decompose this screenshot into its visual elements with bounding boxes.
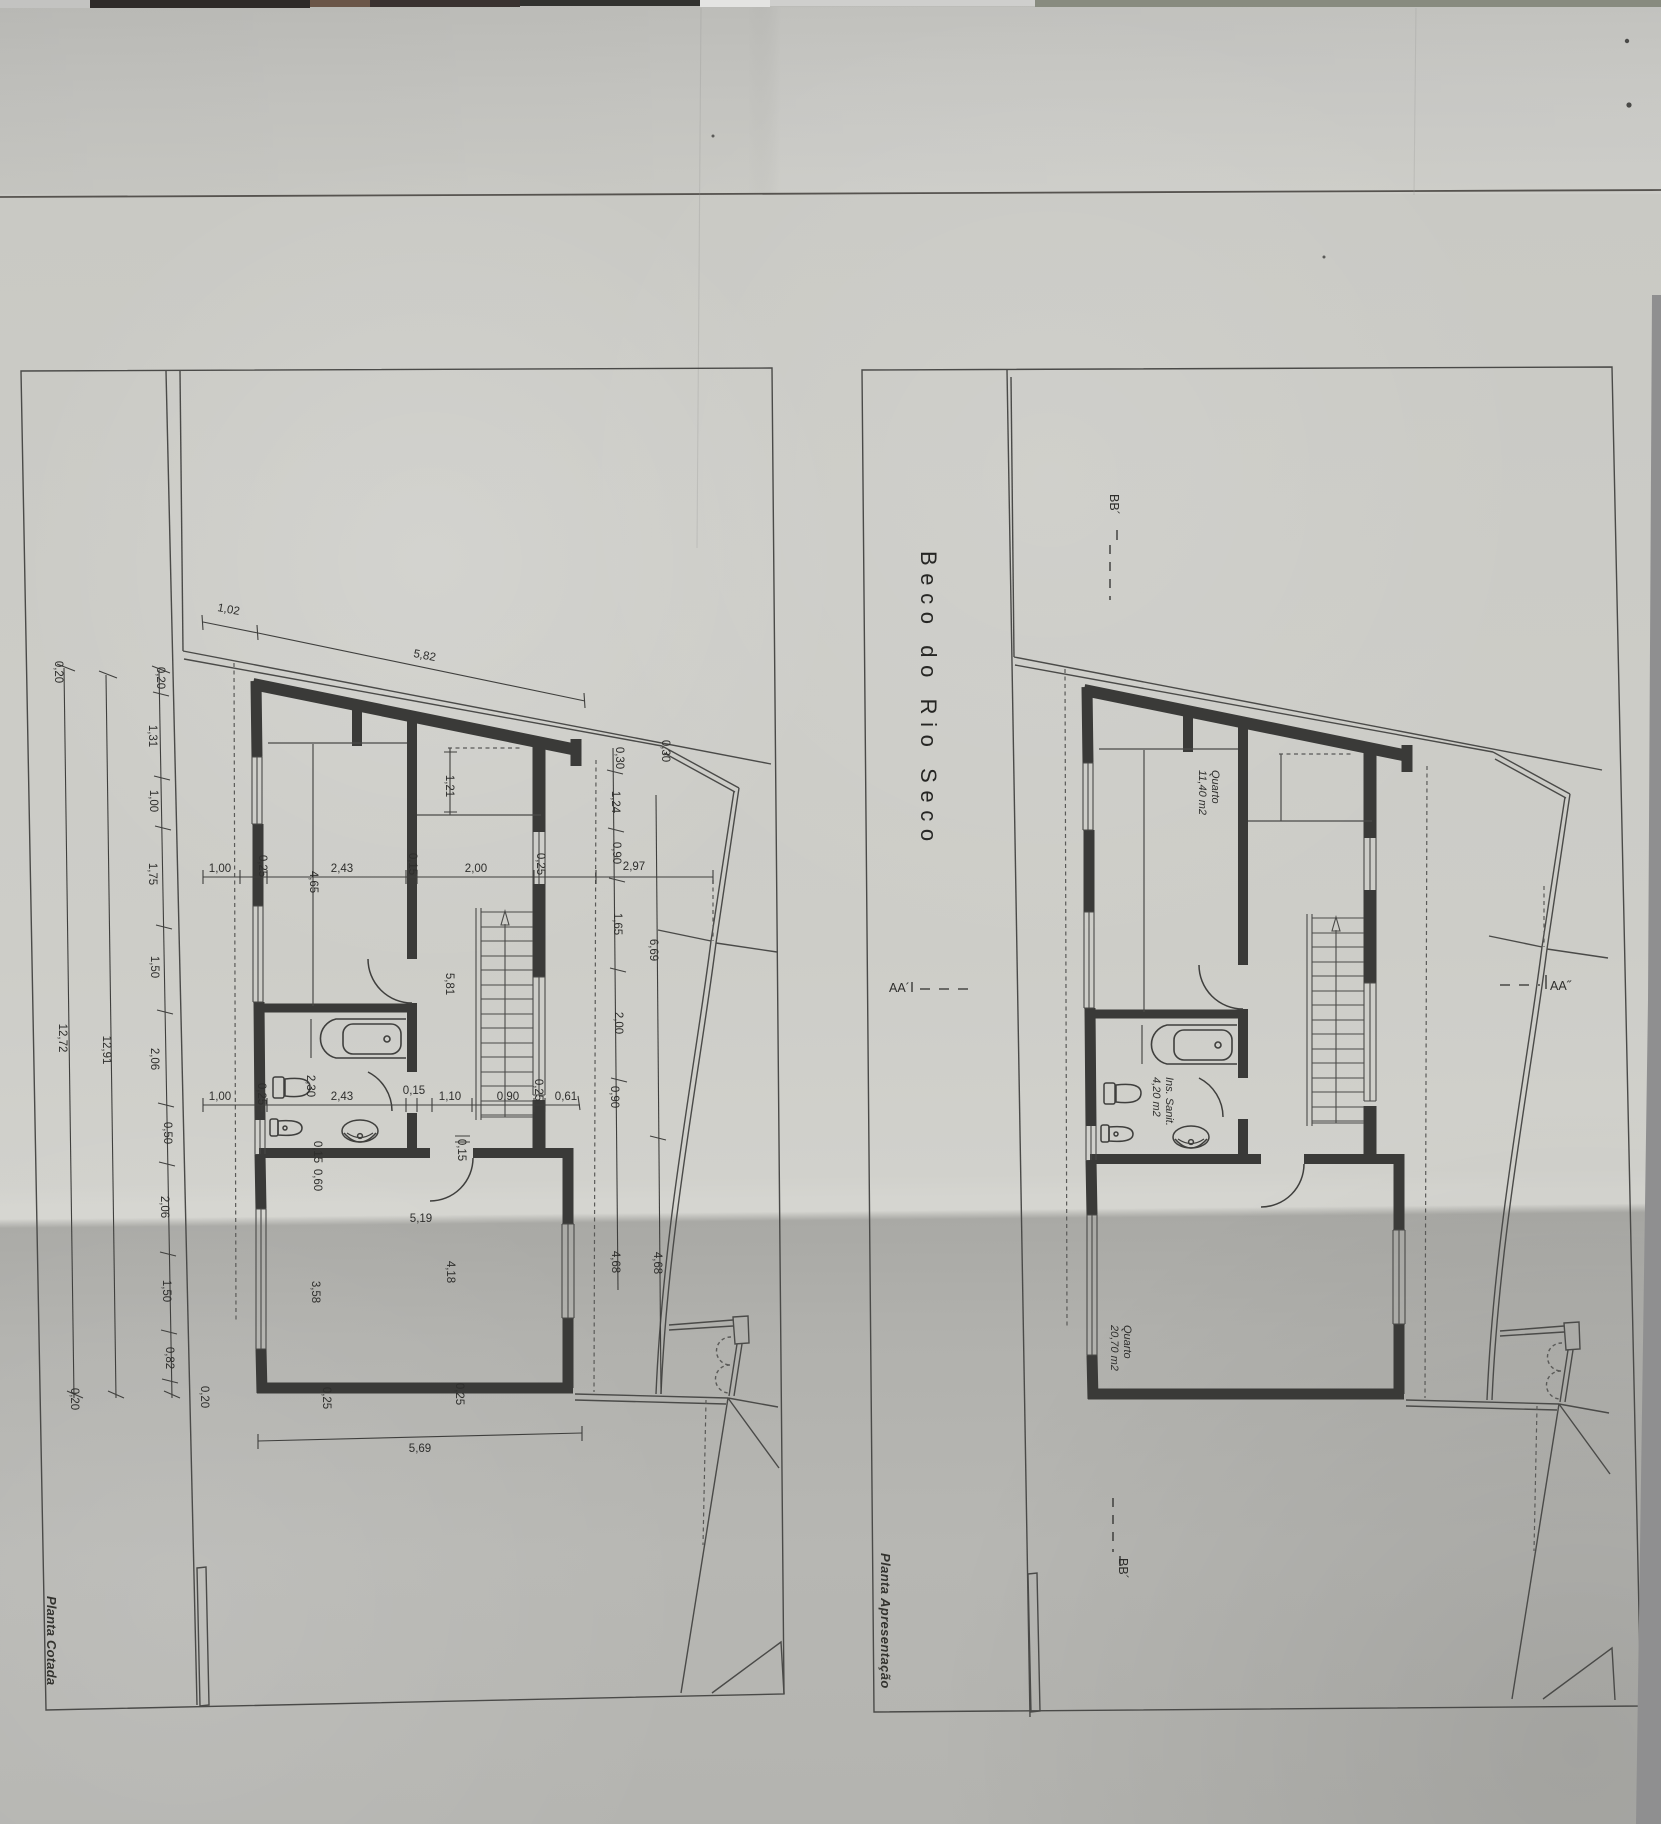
svg-text:2,43: 2,43: [331, 1091, 353, 1103]
svg-text:1,10: 1,10: [439, 1091, 461, 1103]
svg-text:0,15: 0,15: [406, 853, 418, 875]
svg-text:12,72: 12,72: [56, 1024, 68, 1053]
svg-text:AA˝: AA˝: [1550, 979, 1572, 993]
svg-text:0,90: 0,90: [610, 842, 622, 864]
svg-text:11,40 m2: 11,40 m2: [1196, 770, 1208, 815]
svg-text:2,06: 2,06: [148, 1048, 160, 1070]
svg-text:6,69: 6,69: [647, 939, 659, 961]
svg-text:0,20: 0,20: [154, 667, 166, 689]
svg-text:4,65: 4,65: [307, 871, 319, 893]
svg-text:2,97: 2,97: [623, 861, 645, 873]
svg-text:2,43: 2,43: [331, 863, 353, 875]
svg-text:0,20: 0,20: [198, 1386, 210, 1408]
svg-text:2,06: 2,06: [158, 1196, 170, 1218]
svg-text:Ins. Sanit.: Ins. Sanit.: [1163, 1077, 1175, 1126]
svg-text:0,15: 0,15: [403, 1085, 425, 1097]
svg-text:20,70 m2: 20,70 m2: [1108, 1324, 1120, 1371]
svg-text:2,30: 2,30: [304, 1075, 316, 1097]
svg-text:BB´: BB´: [1116, 1558, 1130, 1579]
svg-text:0,90: 0,90: [497, 1091, 519, 1103]
svg-text:Beco do Rio Seco: Beco do Rio Seco: [916, 551, 941, 849]
svg-text:1,50: 1,50: [148, 956, 160, 978]
svg-text:BB´: BB´: [1107, 494, 1121, 515]
svg-text:AA´: AA´: [889, 981, 910, 995]
svg-text:0,25: 0,25: [255, 1083, 267, 1105]
svg-text:1,00: 1,00: [147, 790, 159, 812]
svg-text:0,25: 0,25: [532, 1079, 544, 1101]
svg-text:0,30: 0,30: [613, 747, 625, 769]
svg-text:0,25: 0,25: [256, 855, 268, 877]
svg-text:0,15: 0,15: [455, 1139, 467, 1161]
svg-text:0,61: 0,61: [555, 1091, 577, 1103]
svg-text:0,25: 0,25: [534, 853, 546, 875]
svg-text:0,82: 0,82: [163, 1347, 175, 1369]
svg-text:Quarto: Quarto: [1209, 770, 1221, 804]
svg-text:2,00: 2,00: [612, 1012, 624, 1034]
svg-text:4,68: 4,68: [609, 1251, 621, 1273]
svg-text:Planta Apresentação: Planta Apresentação: [878, 1553, 893, 1689]
svg-text:3,58: 3,58: [309, 1281, 321, 1303]
svg-text:0,25: 0,25: [320, 1387, 332, 1409]
svg-text:0,90: 0,90: [608, 1086, 620, 1108]
svg-text:Quarto: Quarto: [1121, 1325, 1133, 1359]
svg-text:0,30: 0,30: [659, 740, 671, 762]
svg-text:0,50: 0,50: [161, 1122, 173, 1144]
svg-text:1,21: 1,21: [443, 775, 455, 797]
svg-text:1,75: 1,75: [146, 863, 158, 885]
svg-text:0,15: 0,15: [311, 1141, 323, 1163]
svg-text:5,69: 5,69: [409, 1443, 431, 1455]
svg-text:1,00: 1,00: [209, 863, 231, 875]
svg-text:Planta Cotada: Planta Cotada: [44, 1596, 59, 1685]
svg-text:5,81: 5,81: [443, 973, 455, 995]
svg-text:0,25: 0,25: [453, 1383, 465, 1405]
svg-text:1,65: 1,65: [611, 913, 623, 935]
svg-text:4,18: 4,18: [444, 1261, 456, 1283]
svg-text:5,19: 5,19: [410, 1213, 432, 1225]
svg-text:1,24: 1,24: [609, 791, 621, 814]
svg-text:0,60: 0,60: [311, 1169, 323, 1191]
svg-text:4,20 m2: 4,20 m2: [1150, 1077, 1162, 1117]
svg-text:1,50: 1,50: [160, 1280, 172, 1302]
svg-text:4,68: 4,68: [651, 1252, 663, 1274]
svg-text:12,91: 12,91: [100, 1036, 112, 1065]
svg-text:0,20: 0,20: [52, 661, 64, 683]
svg-text:1,00: 1,00: [209, 1091, 231, 1103]
svg-text:1,31: 1,31: [146, 725, 158, 747]
svg-text:0,20: 0,20: [68, 1388, 80, 1410]
svg-text:2,00: 2,00: [465, 863, 487, 875]
